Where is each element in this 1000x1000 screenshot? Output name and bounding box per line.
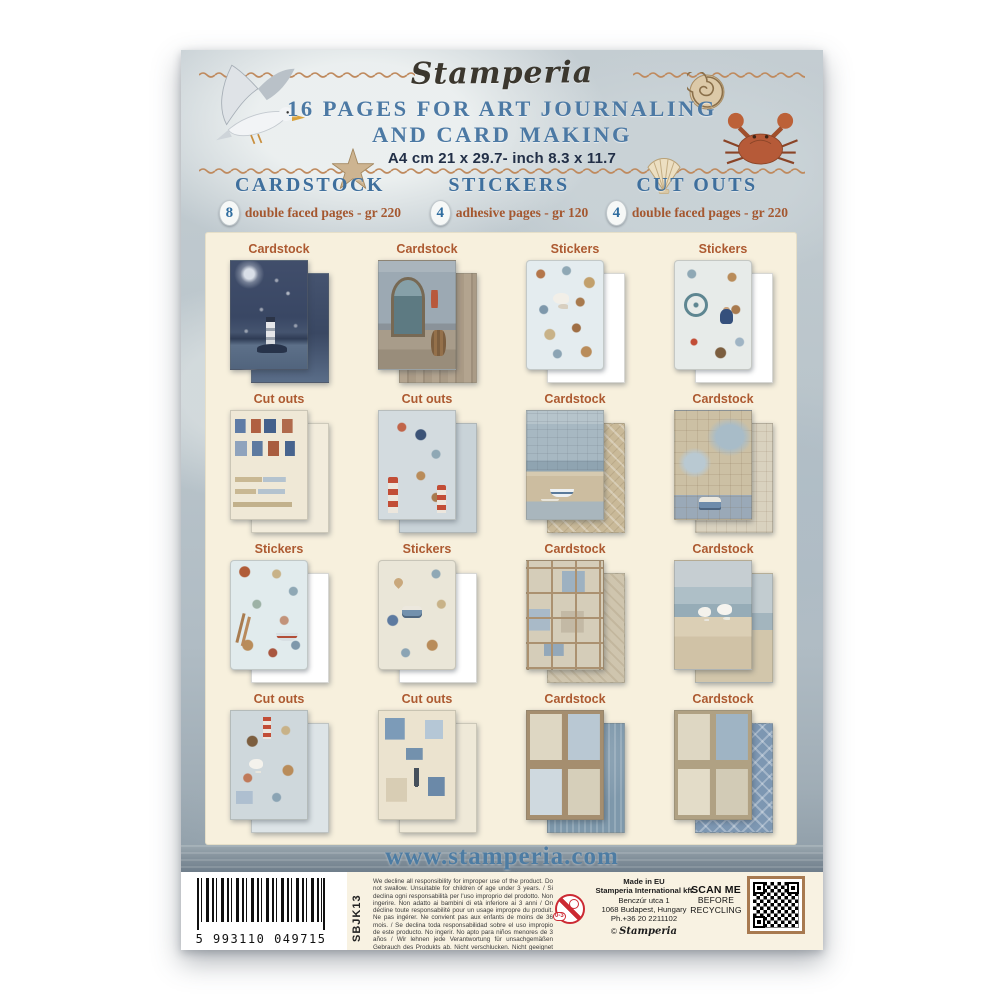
- pack-item-harbor-beach: Cardstock: [501, 392, 649, 542]
- pack-item-preview: [526, 710, 624, 834]
- title-line-1: 16 PAGES FOR ART JOURNALING: [181, 96, 823, 122]
- barcode-label-strip: 5 993110 049715 SBJK13 We decline all re…: [181, 872, 823, 950]
- pack-item-van-hearts: Stickers: [353, 542, 501, 692]
- pack-item-preview: [230, 560, 328, 684]
- pack-items-grid: Cardstock Cardstock Stickers Stickers Cu…: [205, 242, 797, 845]
- contents-column-cardstock: CARDSTOCK 8 double faced pages - gr 220: [200, 174, 420, 226]
- sheet-front: [378, 260, 456, 370]
- copyright-symbol: ©: [611, 927, 617, 936]
- pack-item-label: Cardstock: [649, 542, 797, 557]
- pack-item-journaling-cards: Cardstock: [501, 692, 649, 842]
- age-warning-face: [569, 899, 579, 909]
- contents-column-cutouts: CUT OUTS 4 double faced pages - gr 220: [587, 174, 807, 226]
- copyright-line: © Stamperia: [585, 926, 703, 937]
- pack-item-label: Stickers: [205, 542, 353, 557]
- pack-item-sea-creatures: Stickers: [501, 242, 649, 392]
- column-description: adhesive pages - gr 120: [456, 205, 589, 221]
- pack-item-label: Cardstock: [353, 242, 501, 257]
- pack-item-label: Stickers: [353, 542, 501, 557]
- sheet-front: [378, 710, 456, 820]
- qr-finder-square: [753, 916, 765, 928]
- size-line: A4 cm 21 x 29.7- inch 8.3 x 11.7: [181, 150, 823, 167]
- pack-item-preview: [378, 710, 476, 834]
- sheet-front: [674, 710, 752, 820]
- count-badge: 4: [606, 200, 627, 226]
- pack-item-preview: [674, 260, 772, 384]
- ean-barcode: [197, 878, 325, 922]
- pack-item-houses: Cut outs: [205, 392, 353, 542]
- barcode-zone: 5 993110 049715: [181, 872, 347, 950]
- pack-item-preview: [526, 410, 624, 534]
- pack-item-label: Cardstock: [501, 542, 649, 557]
- pack-item-preview: [378, 260, 476, 384]
- pack-item-label: Cut outs: [205, 692, 353, 707]
- sheet-front: [230, 560, 308, 670]
- pack-item-label: Cardstock: [649, 392, 797, 407]
- safety-disclaimer: We decline all responsibility for improp…: [373, 878, 553, 950]
- contents-column-stickers: STICKERS 4 adhesive pages - gr 120: [399, 174, 619, 226]
- pack-item-label: Cut outs: [205, 392, 353, 407]
- copyright-brand-script: Stamperia: [619, 926, 677, 937]
- ean-number: 5 993110 049715: [181, 932, 341, 946]
- qr-code-pixels: [753, 882, 799, 928]
- pack-item-preview: [378, 560, 476, 684]
- sheet-front: [526, 710, 604, 820]
- pack-item-label: Cut outs: [353, 692, 501, 707]
- pack-item-houses-anchor: Cut outs: [353, 692, 501, 842]
- contents-preview-panel: Cardstock Cardstock Stickers Stickers Cu…: [205, 232, 797, 845]
- sheet-front: [526, 410, 604, 520]
- sheet-front: [674, 260, 752, 370]
- pack-item-label: Cardstock: [501, 692, 649, 707]
- column-title: CARDSTOCK: [200, 174, 420, 197]
- pack-item-preview: [674, 710, 772, 834]
- pack-item-shells-boat: Stickers: [205, 542, 353, 692]
- column-title: STICKERS: [399, 174, 619, 197]
- sheet-front: [230, 410, 308, 520]
- pack-item-label: Cardstock: [205, 242, 353, 257]
- sheet-front: [378, 410, 456, 520]
- title-line-2: AND CARD MAKING: [181, 122, 823, 148]
- product-back-packaging: Stamperia 16 PAGES FOR ART JOURNALING AN…: [181, 50, 823, 950]
- qr-code: [747, 876, 805, 934]
- website-url: www.stamperia.com: [181, 843, 823, 871]
- pack-item-horses-beach: Cardstock: [649, 542, 797, 692]
- pack-item-preview: [674, 410, 772, 534]
- pack-item-collage-frames: Cardstock: [501, 542, 649, 692]
- pack-item-preview: [230, 410, 328, 534]
- pack-item-label: Stickers: [649, 242, 797, 257]
- sheet-front: [674, 560, 752, 670]
- pack-item-cards-diamond: Cardstock: [649, 692, 797, 842]
- sku-code: SBJK13: [351, 880, 363, 942]
- pack-item-lighthouse-night: Cardstock: [205, 242, 353, 392]
- column-title: CUT OUTS: [587, 174, 807, 197]
- column-description: double faced pages - gr 220: [632, 205, 788, 221]
- age-warning-icon: 0-3: [555, 894, 585, 924]
- count-badge: 8: [219, 200, 240, 226]
- count-badge: 4: [430, 200, 451, 226]
- sheet-front: [674, 410, 752, 520]
- pack-item-horses-lighthouse: Cut outs: [205, 692, 353, 842]
- pack-item-lighthouse-figures: Cut outs: [353, 392, 501, 542]
- pack-item-label: Cut outs: [353, 392, 501, 407]
- age-warning-label: 0-3: [553, 912, 566, 921]
- pack-item-label: Cardstock: [649, 692, 797, 707]
- pack-item-label: Stickers: [501, 242, 649, 257]
- pack-item-preview: [674, 560, 772, 684]
- pack-item-ship-wheel: Stickers: [649, 242, 797, 392]
- sheet-front: [230, 710, 308, 820]
- pack-item-preview: [526, 260, 624, 384]
- sheet-front: [378, 560, 456, 670]
- pack-item-map-van: Cardstock: [649, 392, 797, 542]
- recycling-note: SCAN MEBEFORERECYCLING: [685, 885, 747, 915]
- sheet-front: [526, 260, 604, 370]
- pack-item-preview: [230, 260, 328, 384]
- sheet-front: [526, 560, 604, 670]
- pack-item-preview: [230, 710, 328, 834]
- pack-item-preview: [526, 560, 624, 684]
- sheet-front: [230, 260, 308, 370]
- pack-item-preview: [378, 410, 476, 534]
- pack-item-sea-doorway: Cardstock: [353, 242, 501, 392]
- column-description: double faced pages - gr 220: [245, 205, 401, 221]
- pack-item-label: Cardstock: [501, 392, 649, 407]
